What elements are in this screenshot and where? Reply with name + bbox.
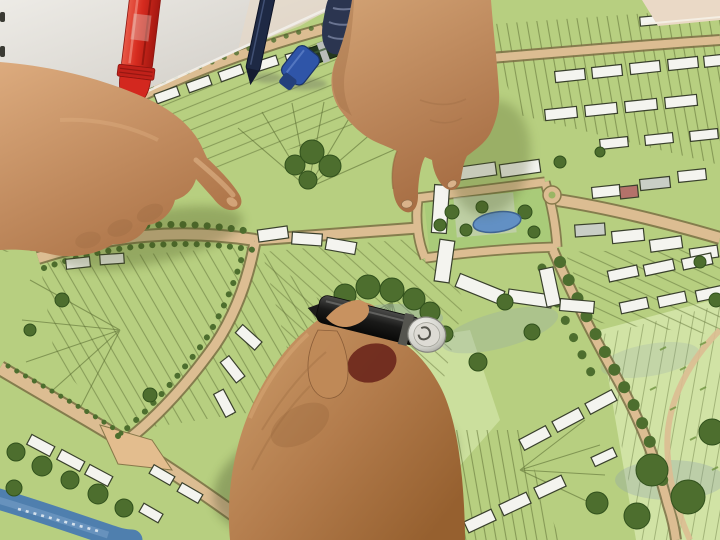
planning-photo — [0, 0, 720, 540]
red-roof-building — [619, 185, 638, 199]
photo-scene — [0, 0, 720, 540]
